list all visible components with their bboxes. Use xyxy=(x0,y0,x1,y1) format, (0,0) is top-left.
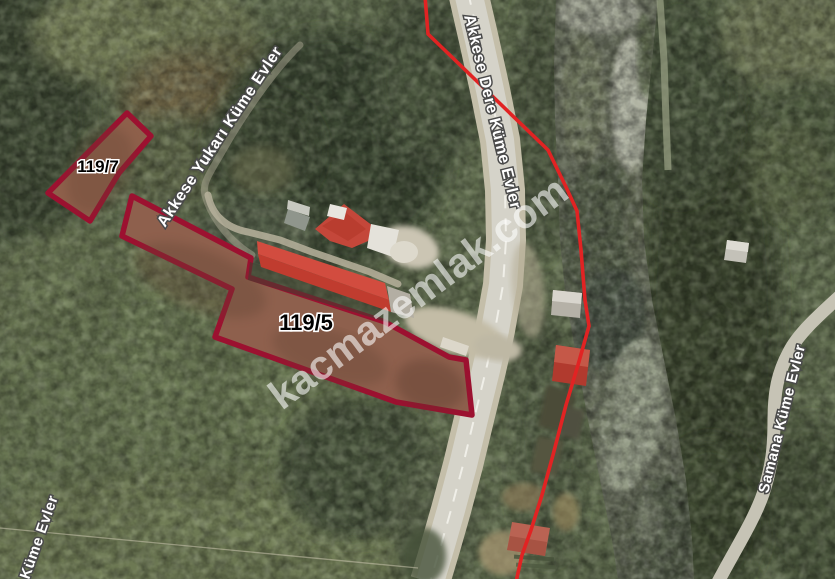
svg-text:119/7: 119/7 xyxy=(77,157,119,176)
svg-text:119/5: 119/5 xyxy=(279,310,333,335)
